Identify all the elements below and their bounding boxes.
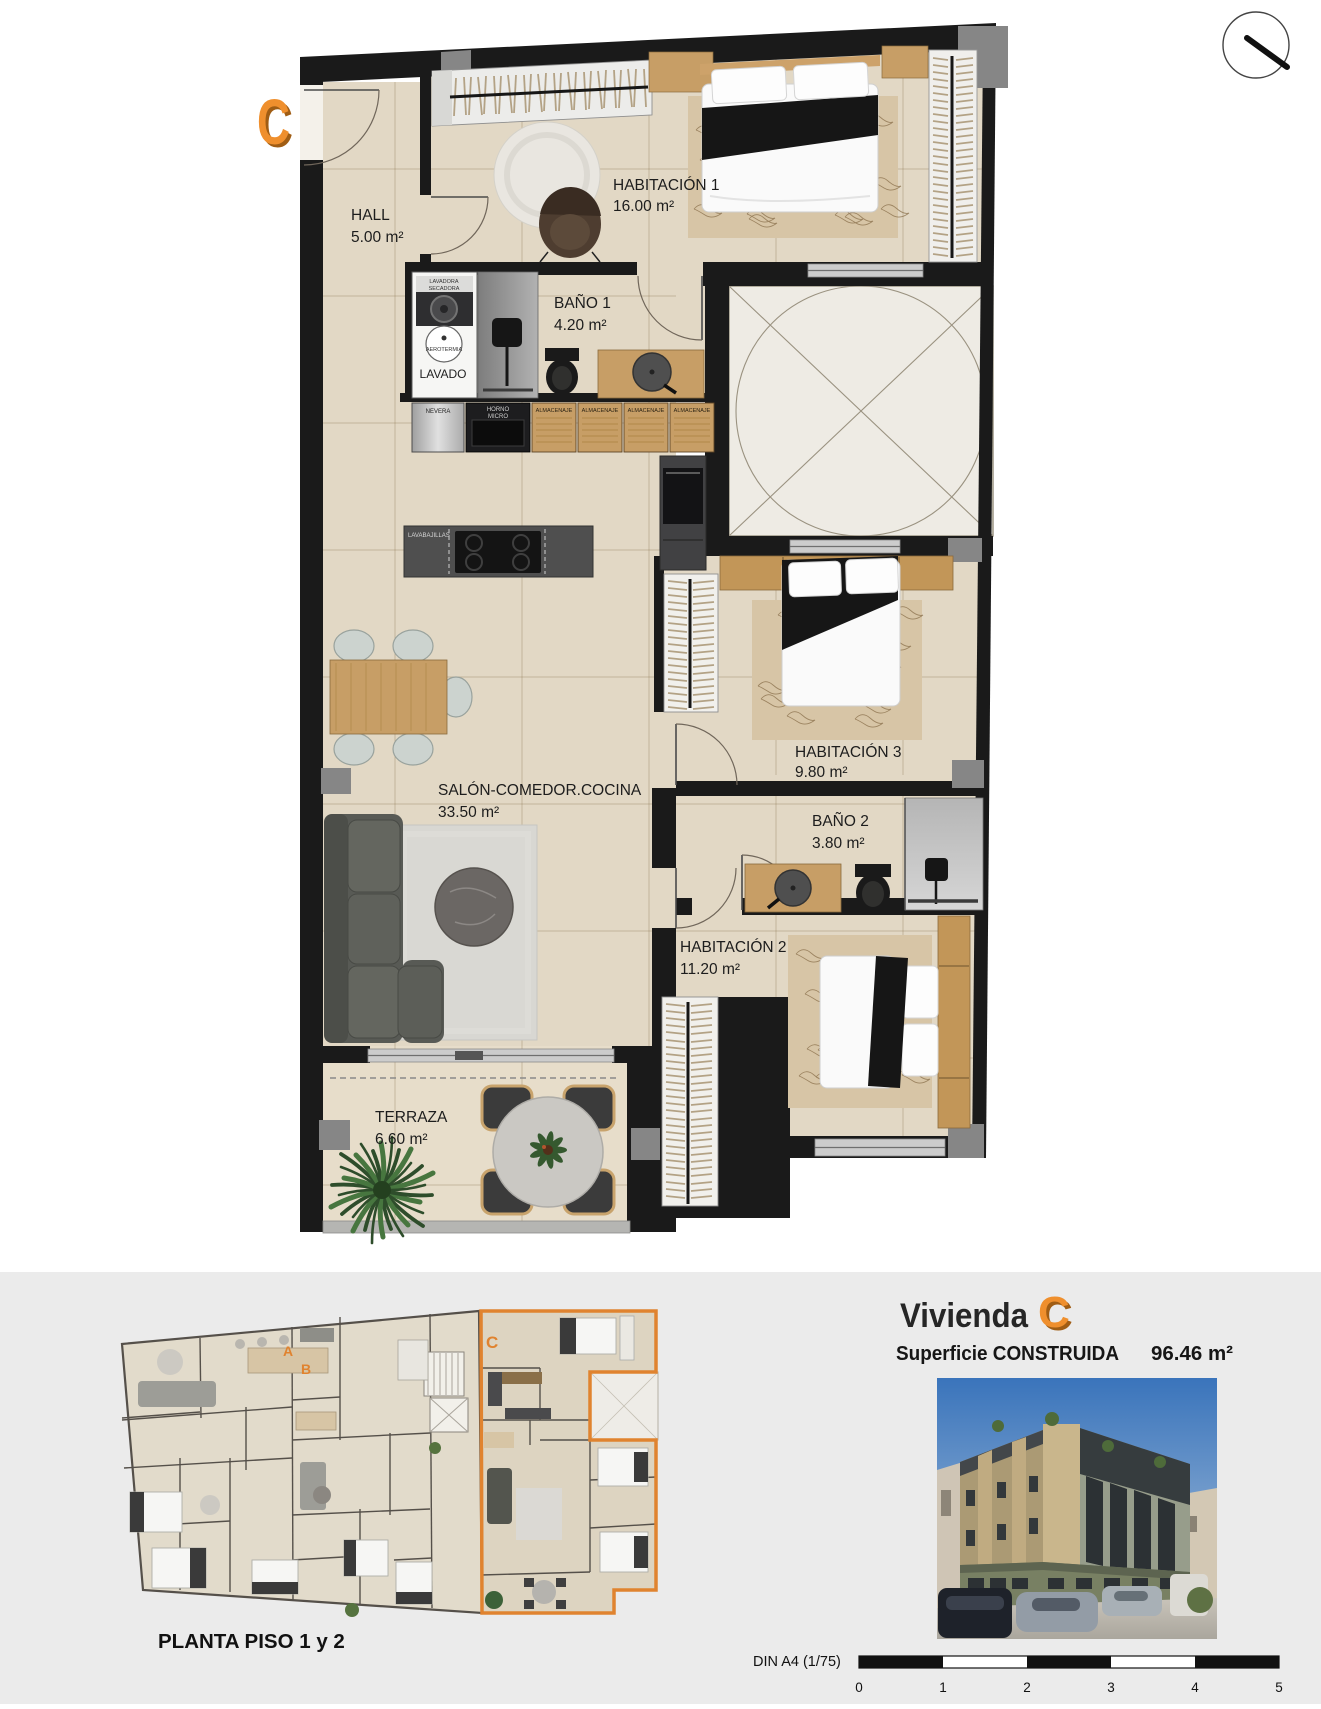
svg-text:SALÓN-COMEDOR.COCINA: SALÓN-COMEDOR.COCINA (438, 782, 642, 799)
svg-text:1: 1 (939, 1680, 947, 1695)
svg-text:16.00 m²: 16.00 m² (613, 198, 674, 215)
svg-text:11.20 m²: 11.20 m² (680, 961, 740, 978)
svg-text:4: 4 (1191, 1680, 1199, 1695)
svg-text:ALMACENAJE: ALMACENAJE (582, 408, 619, 414)
svg-text:2: 2 (1023, 1680, 1031, 1695)
svg-text:BAÑO 1: BAÑO 1 (554, 295, 611, 312)
svg-text:HALL: HALL (351, 207, 390, 224)
svg-text:96.46 m²: 96.46 m² (1151, 1343, 1233, 1365)
svg-text:C: C (486, 1333, 498, 1352)
svg-text:HABITACIÓN 2: HABITACIÓN 2 (680, 939, 787, 956)
svg-text:3.80 m²: 3.80 m² (812, 835, 865, 852)
svg-text:Superficie CONSTRUIDA: Superficie CONSTRUIDA (896, 1343, 1119, 1365)
svg-text:Vivienda: Vivienda (900, 1297, 1029, 1335)
svg-text:DIN A4 (1/75): DIN A4 (1/75) (753, 1654, 841, 1670)
svg-text:3: 3 (1107, 1680, 1115, 1695)
svg-text:LAVABAJILLAS: LAVABAJILLAS (408, 533, 450, 539)
svg-text:SECADORA: SECADORA (429, 286, 460, 292)
svg-text:ALMACENAJE: ALMACENAJE (674, 408, 711, 414)
svg-text:ALMACENAJE: ALMACENAJE (536, 408, 573, 414)
svg-text:MICRO: MICRO (488, 414, 508, 420)
svg-text:4.20 m²: 4.20 m² (554, 317, 607, 334)
svg-text:TERRAZA: TERRAZA (375, 1109, 448, 1126)
svg-text:AEROTERMIA: AEROTERMIA (426, 347, 463, 353)
svg-text:9.80 m²: 9.80 m² (795, 764, 848, 781)
svg-text:C: C (1038, 1288, 1070, 1337)
svg-text:NEVERA: NEVERA (426, 409, 451, 415)
svg-text:BAÑO 2: BAÑO 2 (812, 813, 869, 830)
svg-text:5: 5 (1275, 1680, 1283, 1695)
svg-text:ALMACENAJE: ALMACENAJE (628, 408, 665, 414)
svg-text:LAVADO: LAVADO (420, 367, 467, 381)
svg-text:0: 0 (855, 1680, 863, 1695)
svg-text:B: B (301, 1361, 311, 1377)
svg-text:HABITACIÓN 3: HABITACIÓN 3 (795, 744, 902, 761)
svg-text:HABITACIÓN 1: HABITACIÓN 1 (613, 177, 720, 194)
svg-text:PLANTA PISO 1 y 2: PLANTA PISO 1 y 2 (158, 1630, 345, 1653)
svg-text:6.60 m²: 6.60 m² (375, 1131, 428, 1148)
svg-text:33.50 m²: 33.50 m² (438, 804, 499, 821)
svg-text:HORNO: HORNO (487, 407, 510, 413)
svg-text:C: C (257, 86, 290, 158)
svg-text:A: A (283, 1343, 293, 1359)
svg-text:LAVADORA: LAVADORA (429, 279, 458, 285)
svg-text:5.00 m²: 5.00 m² (351, 229, 404, 246)
